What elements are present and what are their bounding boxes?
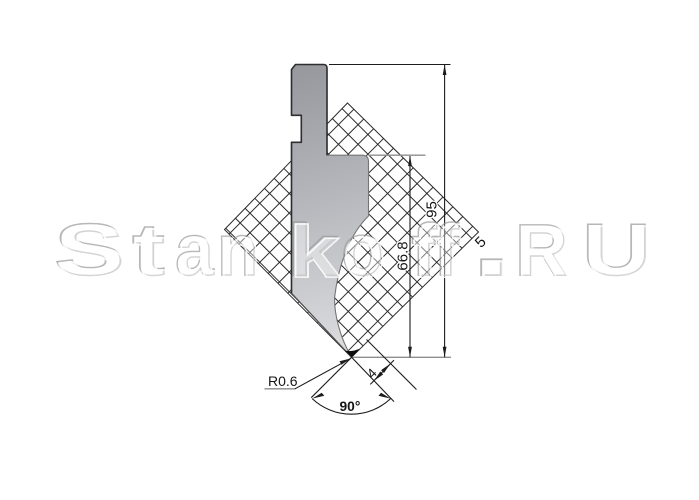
svg-text:66.8: 66.8: [395, 241, 412, 270]
svg-text:R0.6: R0.6: [268, 373, 298, 389]
svg-text:90°: 90°: [340, 399, 361, 414]
